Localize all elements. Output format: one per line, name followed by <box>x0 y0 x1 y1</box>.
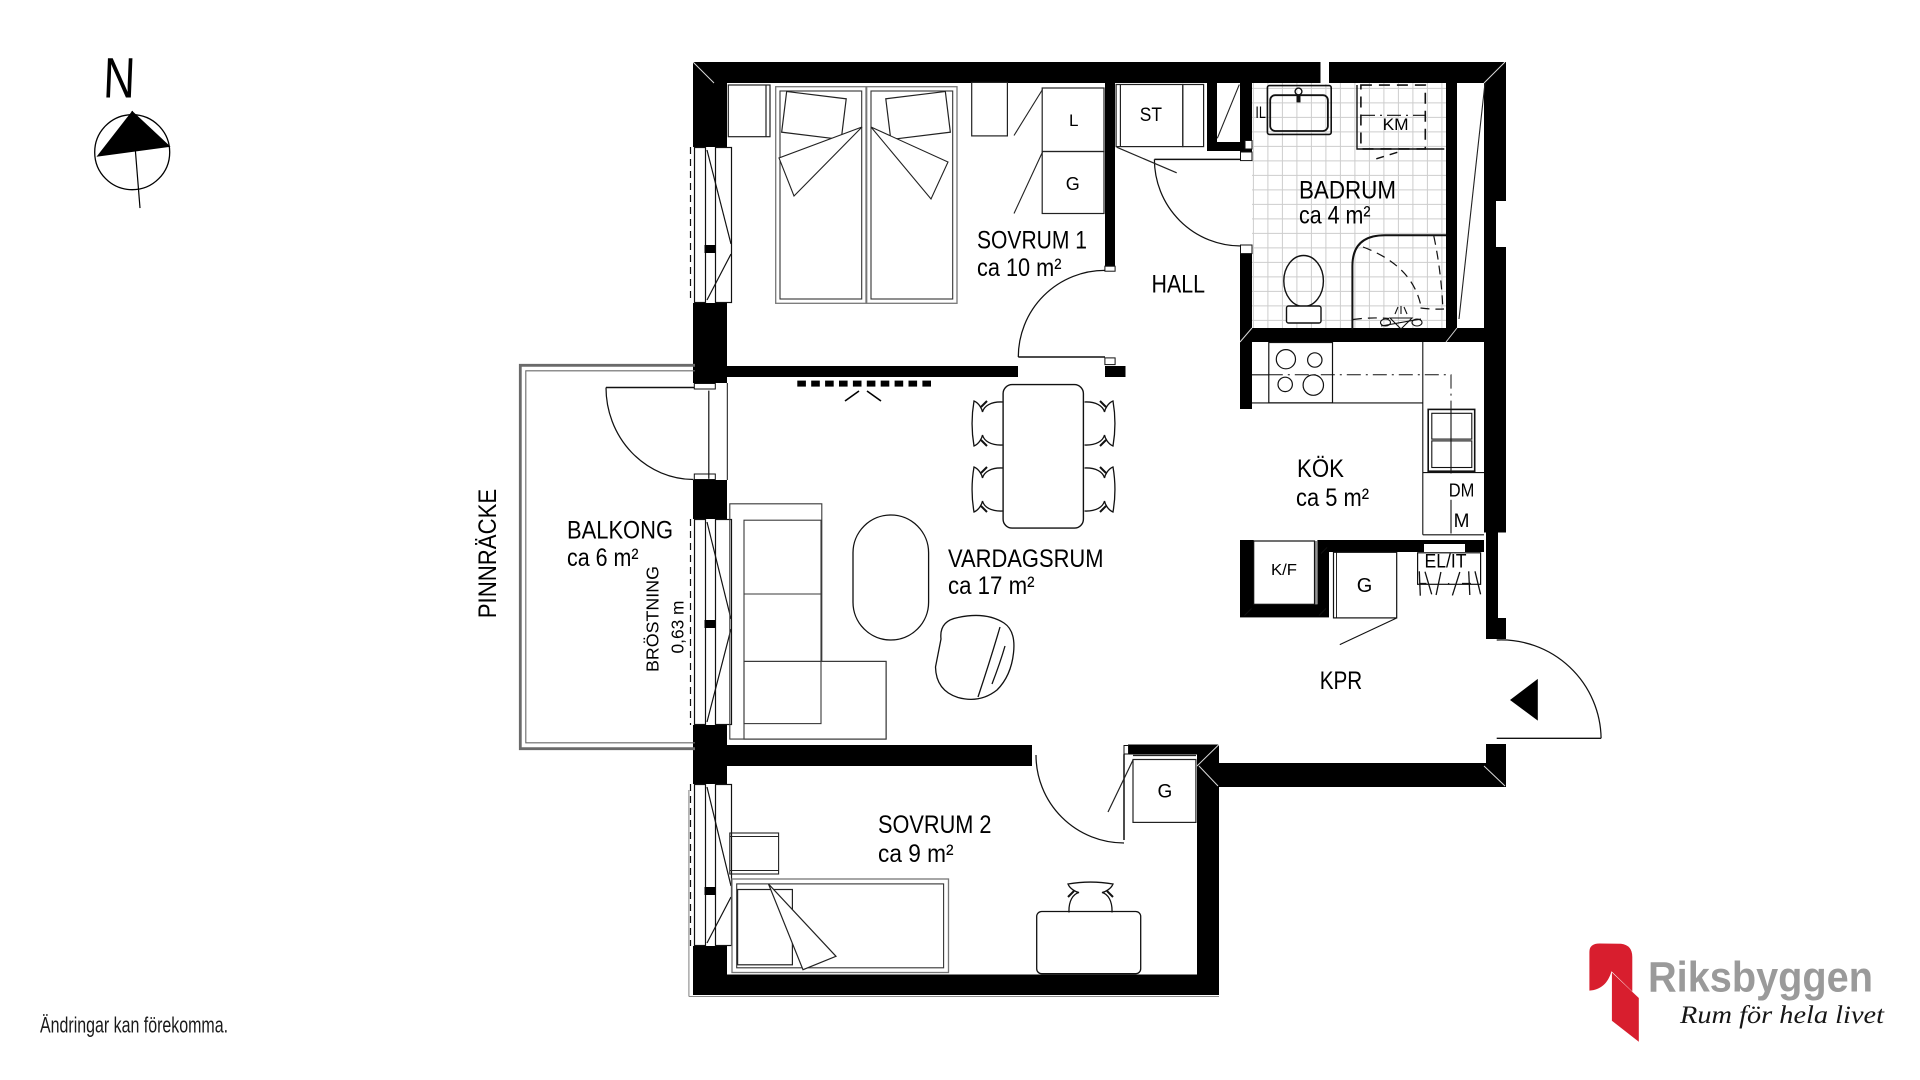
svg-text:K/F: K/F <box>1271 562 1297 579</box>
svg-text:ca 6 m²: ca 6 m² <box>567 544 639 572</box>
svg-text:G: G <box>1357 575 1373 597</box>
svg-text:BRÖSTNING: BRÖSTNING <box>643 566 663 672</box>
svg-text:ST: ST <box>1140 105 1163 126</box>
svg-text:SOVRUM 2: SOVRUM 2 <box>878 811 992 839</box>
svg-text:N: N <box>102 46 136 110</box>
svg-text:ca 9 m²: ca 9 m² <box>878 840 954 868</box>
svg-text:ca 5 m²: ca 5 m² <box>1296 484 1369 512</box>
svg-text:ca 17 m²: ca 17 m² <box>948 572 1035 600</box>
svg-text:M: M <box>1454 511 1470 532</box>
svg-text:ca 10 m²: ca 10 m² <box>977 254 1062 282</box>
svg-text:Rum för hela livet: Rum för hela livet <box>1679 1002 1885 1029</box>
svg-text:KÖK: KÖK <box>1297 455 1344 483</box>
svg-text:ca 4 m²: ca 4 m² <box>1299 202 1371 230</box>
svg-text:BALKONG: BALKONG <box>567 517 673 545</box>
svg-text:G: G <box>1066 174 1080 194</box>
svg-text:HALL: HALL <box>1152 271 1206 299</box>
svg-text:KPR: KPR <box>1320 667 1363 695</box>
svg-text:G: G <box>1158 781 1173 802</box>
svg-text:EL/IT: EL/IT <box>1425 552 1467 573</box>
svg-text:L: L <box>1069 111 1078 130</box>
svg-text:VARDAGSRUM: VARDAGSRUM <box>948 545 1104 573</box>
svg-text:KM: KM <box>1383 116 1409 134</box>
svg-text:0,63 m: 0,63 m <box>668 601 688 654</box>
svg-text:DM: DM <box>1449 480 1475 501</box>
svg-text:SOVRUM 1: SOVRUM 1 <box>977 227 1087 255</box>
svg-text:IL: IL <box>1255 103 1266 122</box>
svg-text:Ändringar kan förekomma.: Ändringar kan förekomma. <box>40 1013 228 1038</box>
svg-text:PINNRÄCKE: PINNRÄCKE <box>474 489 502 619</box>
svg-text:BADRUM: BADRUM <box>1299 177 1396 205</box>
svg-text:Riksbyggen: Riksbyggen <box>1648 954 1873 1002</box>
